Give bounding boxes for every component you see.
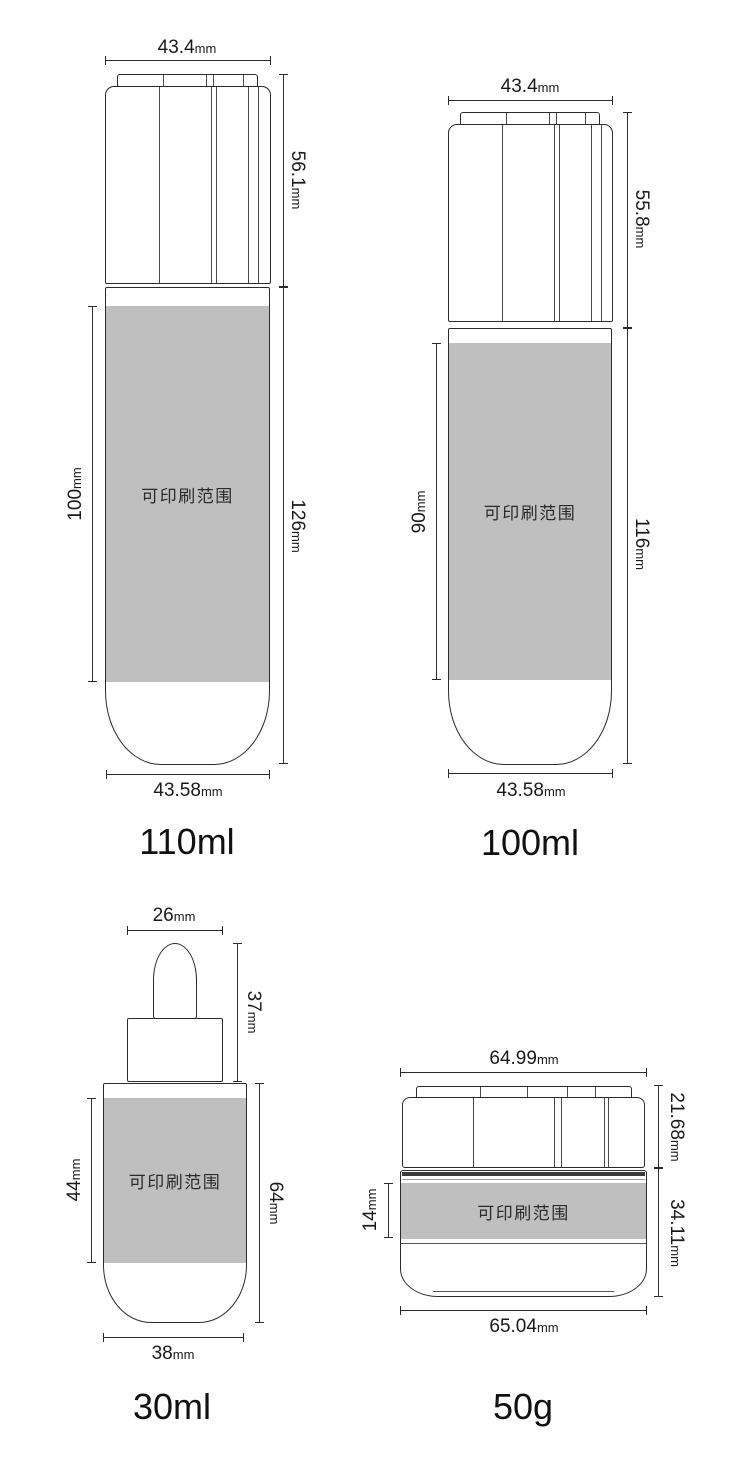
dim-cap-width: 43.4mm (501, 76, 560, 98)
cap-contour-line (213, 75, 214, 86)
cap-contour-line (559, 125, 560, 321)
cap-contour-line (206, 75, 207, 86)
dim-line-print-height (92, 306, 93, 682)
cap-contour-line (502, 125, 503, 321)
dim-line-cap-height (627, 112, 628, 328)
dim-body-width: 65.04mm (489, 1316, 558, 1338)
dim-line-body-width (400, 1310, 647, 1311)
cap-contour-line (258, 87, 259, 283)
cap-contour-line (243, 75, 244, 86)
dim-body-width: 43.58mm (153, 780, 222, 802)
dim-body-height: 126mm (286, 499, 308, 552)
dim-body-height: 34.11mm (665, 1199, 687, 1267)
product-title-110ml: 110ml (139, 821, 234, 863)
cap-contour-line (595, 1087, 596, 1097)
print-area: 可印刷范围 (106, 306, 269, 682)
dim-line-body-width (448, 773, 613, 774)
packaging-spec-sheet: 可印刷范围 43.4mm 56.1mm 100mm 126mm 43.58mm … (0, 0, 750, 1465)
dim-line-body-height (259, 1083, 260, 1323)
cap-contour-line (216, 87, 217, 283)
dim-line-cap-width (105, 60, 271, 61)
dim-line-body-height (627, 328, 628, 764)
cap-contour-line (591, 125, 592, 321)
cap-contour-line (601, 125, 602, 321)
bottle-cap (448, 124, 613, 322)
print-area-label: 可印刷范围 (141, 482, 234, 507)
dim-line-print-height (91, 1098, 92, 1263)
dim-line-dropper-height (237, 943, 238, 1082)
dim-body-height: 116mm (630, 518, 652, 570)
dim-line-cap-height (658, 1085, 659, 1168)
dim-print-height: 44mm (64, 1159, 86, 1202)
dim-body-width: 43.58mm (496, 780, 565, 802)
dropper-bulb (153, 943, 197, 1020)
cap-contour-line (604, 1098, 605, 1167)
dim-cap-height: 21.68mm (665, 1092, 687, 1161)
cap-contour-line (608, 1098, 609, 1167)
cap-contour-line (549, 113, 550, 124)
dim-line-print-height (388, 1183, 389, 1238)
jar-rim-line (402, 1179, 645, 1180)
cap-contour-line (527, 1087, 528, 1097)
cap-contour-line (473, 1098, 474, 1167)
cap-contour-line (554, 125, 555, 321)
cap-contour-line (480, 1087, 481, 1097)
print-area-label: 可印刷范围 (477, 1199, 570, 1224)
cap-contour-line (506, 113, 507, 124)
product-title-100ml: 100ml (481, 822, 579, 864)
print-area: 可印刷范围 (401, 1183, 646, 1239)
dim-line-dropper-width (127, 930, 223, 931)
cap-contour-line (248, 87, 249, 283)
cap-contour-line (567, 1087, 568, 1097)
dim-line-print-height (436, 343, 437, 680)
dim-dropper-width: 26mm (153, 905, 196, 927)
cap-contour-line (554, 1098, 555, 1167)
dim-line-body-width (106, 774, 270, 775)
cap-contour-line (556, 113, 557, 124)
dim-print-height: 90mm (409, 491, 431, 534)
dim-cap-width: 43.4mm (158, 37, 217, 59)
print-area: 可印刷范围 (104, 1098, 246, 1263)
bottle-cap (105, 86, 271, 284)
jar-foot-line (433, 1291, 614, 1292)
dim-cap-height: 55.8mm (630, 190, 652, 249)
cap-contour-line (211, 87, 212, 283)
dim-line-body-height (658, 1168, 659, 1297)
dim-line-cap-width (400, 1072, 647, 1073)
print-area: 可印刷范围 (449, 343, 611, 680)
dim-line-cap-width (448, 100, 613, 101)
product-title-50g: 50g (493, 1386, 553, 1428)
jar-cap (402, 1097, 645, 1168)
dim-body-width: 38mm (152, 1343, 195, 1365)
dim-line-body-width (103, 1337, 244, 1338)
cap-contour-line (163, 75, 164, 86)
dim-body-height: 64mm (264, 1182, 286, 1225)
dim-line-body-height (283, 287, 284, 764)
jar-rim-band (402, 1172, 645, 1176)
dropper-collar (127, 1018, 223, 1082)
print-area-label: 可印刷范围 (484, 499, 577, 524)
dim-cap-width: 64.99mm (489, 1048, 558, 1070)
dim-dropper-height: 37mm (242, 991, 264, 1034)
dim-print-height: 100mm (65, 467, 87, 520)
jar-body-line (401, 1243, 646, 1244)
cap-contour-line (159, 87, 160, 283)
cap-contour-line (561, 1098, 562, 1167)
dim-line-cap-height (283, 74, 284, 287)
cap-contour-line (585, 113, 586, 124)
dim-print-height: 14mm (360, 1189, 382, 1232)
dim-cap-height: 56.1mm (286, 151, 308, 210)
product-title-30ml: 30ml (133, 1386, 211, 1428)
print-area-label: 可印刷范围 (129, 1168, 222, 1193)
